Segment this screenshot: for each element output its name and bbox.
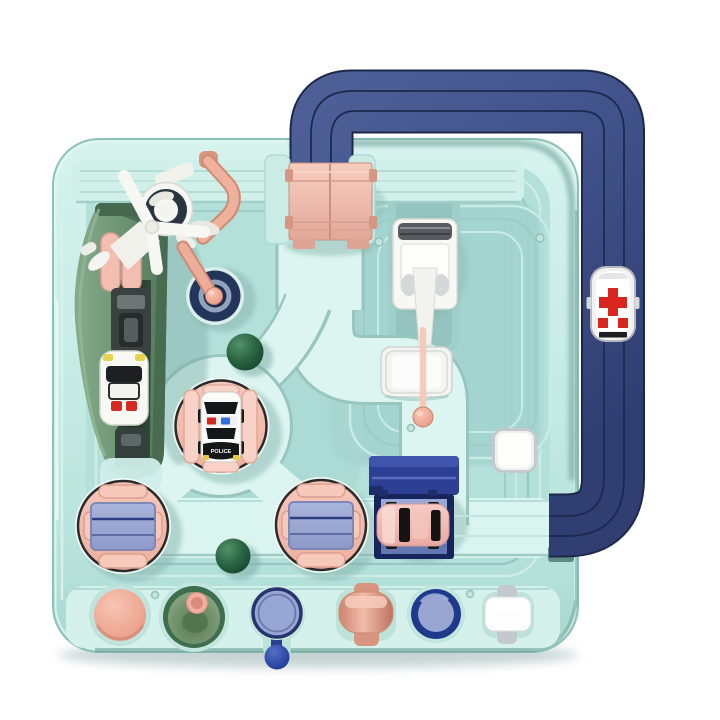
svg-text:POLICE: POLICE: [211, 449, 232, 455]
